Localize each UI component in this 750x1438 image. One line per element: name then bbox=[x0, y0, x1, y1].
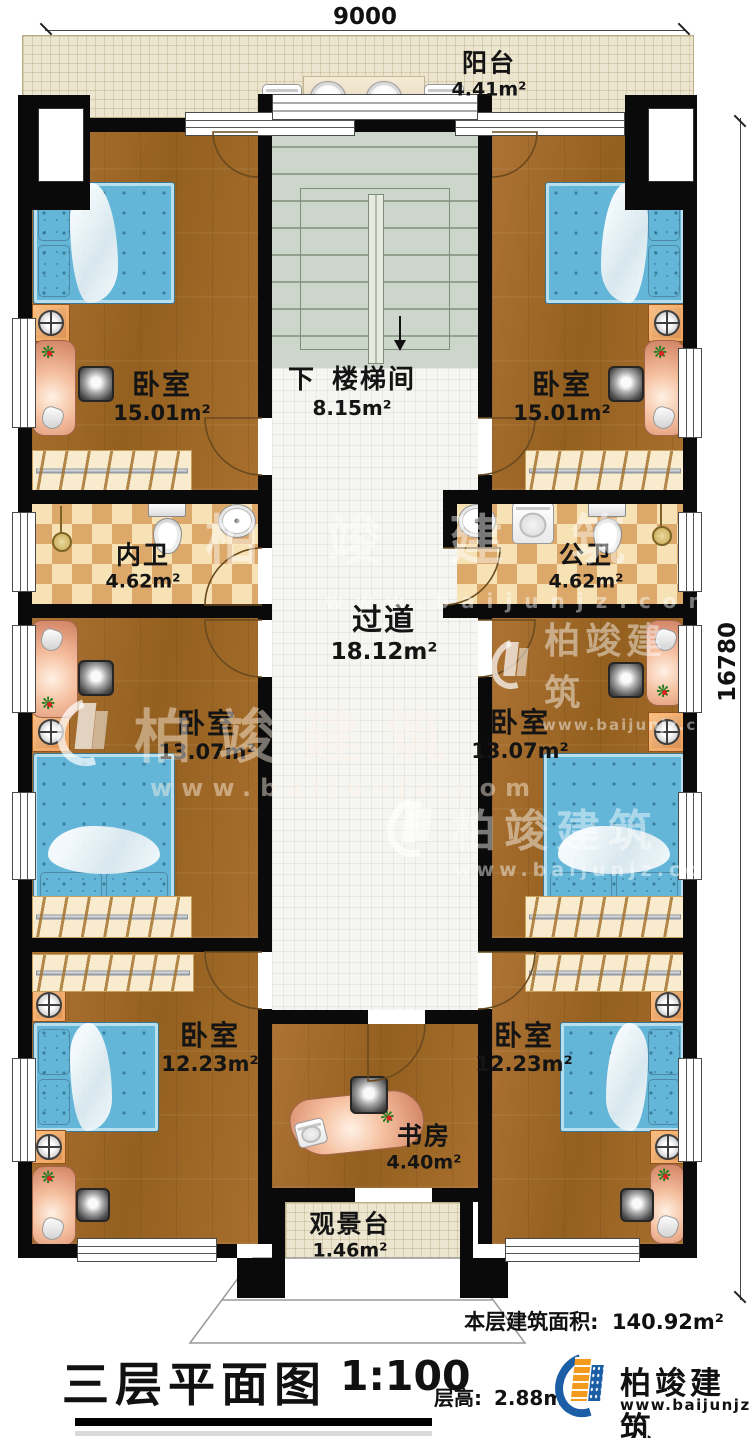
room-label-viewing-deck: 观景台 1.46m² bbox=[309, 1211, 390, 1262]
room-label-bedroom-mid-right: 卧室 13.07m² bbox=[471, 707, 569, 763]
door-arc bbox=[492, 132, 537, 177]
room-label-bath-public: 公卫 4.62m² bbox=[549, 542, 624, 593]
floor-height-label: 层高: bbox=[434, 1386, 482, 1410]
door-arc bbox=[205, 418, 262, 475]
room-label-study: 书房 4.40m² bbox=[387, 1123, 462, 1174]
room-label-balcony: 阳台 4.41m² bbox=[452, 50, 527, 101]
room-label-bath-inner: 内卫 4.62m² bbox=[106, 542, 181, 593]
room-label-bedroom-bottom-right: 卧室 12.23m² bbox=[475, 1020, 573, 1076]
stair-direction: 下 bbox=[288, 365, 316, 395]
door-arc bbox=[205, 620, 262, 677]
room-label-bedroom-top-left: 卧室 15.01m² bbox=[113, 369, 211, 425]
floor-area-value: 140.92m² bbox=[612, 1310, 724, 1334]
room-label-stairwell: 下楼梯间 8.15m² bbox=[288, 366, 416, 420]
door-arc bbox=[205, 548, 262, 605]
brand-logo-icon bbox=[556, 1352, 614, 1418]
floor-area: 本层建筑面积: 140.92m² bbox=[464, 1306, 724, 1336]
floor-height: 层高: 2.88m bbox=[434, 1382, 564, 1411]
door-arc bbox=[478, 952, 535, 1009]
brand-url: www.baijunjz.com bbox=[620, 1396, 750, 1414]
title-underline bbox=[75, 1418, 432, 1426]
room-label-corridor: 过道 18.12m² bbox=[331, 604, 438, 665]
floor-area-label: 本层建筑面积: bbox=[464, 1310, 598, 1334]
title-underline-shadow bbox=[75, 1431, 432, 1436]
page-title: 三层平面图 bbox=[62, 1346, 327, 1415]
door-arc bbox=[478, 418, 535, 475]
room-label-bedroom-bottom-left: 卧室 12.23m² bbox=[161, 1020, 259, 1076]
door-arc bbox=[478, 620, 535, 677]
room-label-bedroom-mid-left: 卧室 13.07m² bbox=[158, 708, 256, 764]
door-arc bbox=[213, 132, 258, 177]
door-arc bbox=[368, 1024, 425, 1081]
door-arc bbox=[205, 952, 262, 1009]
room-label-bedroom-top-right: 卧室 15.01m² bbox=[513, 369, 611, 425]
floor-plan-canvas: 9000 16780 bbox=[0, 0, 750, 1438]
floor-height-value: 2.88m bbox=[494, 1386, 564, 1410]
door-arc bbox=[443, 548, 500, 605]
